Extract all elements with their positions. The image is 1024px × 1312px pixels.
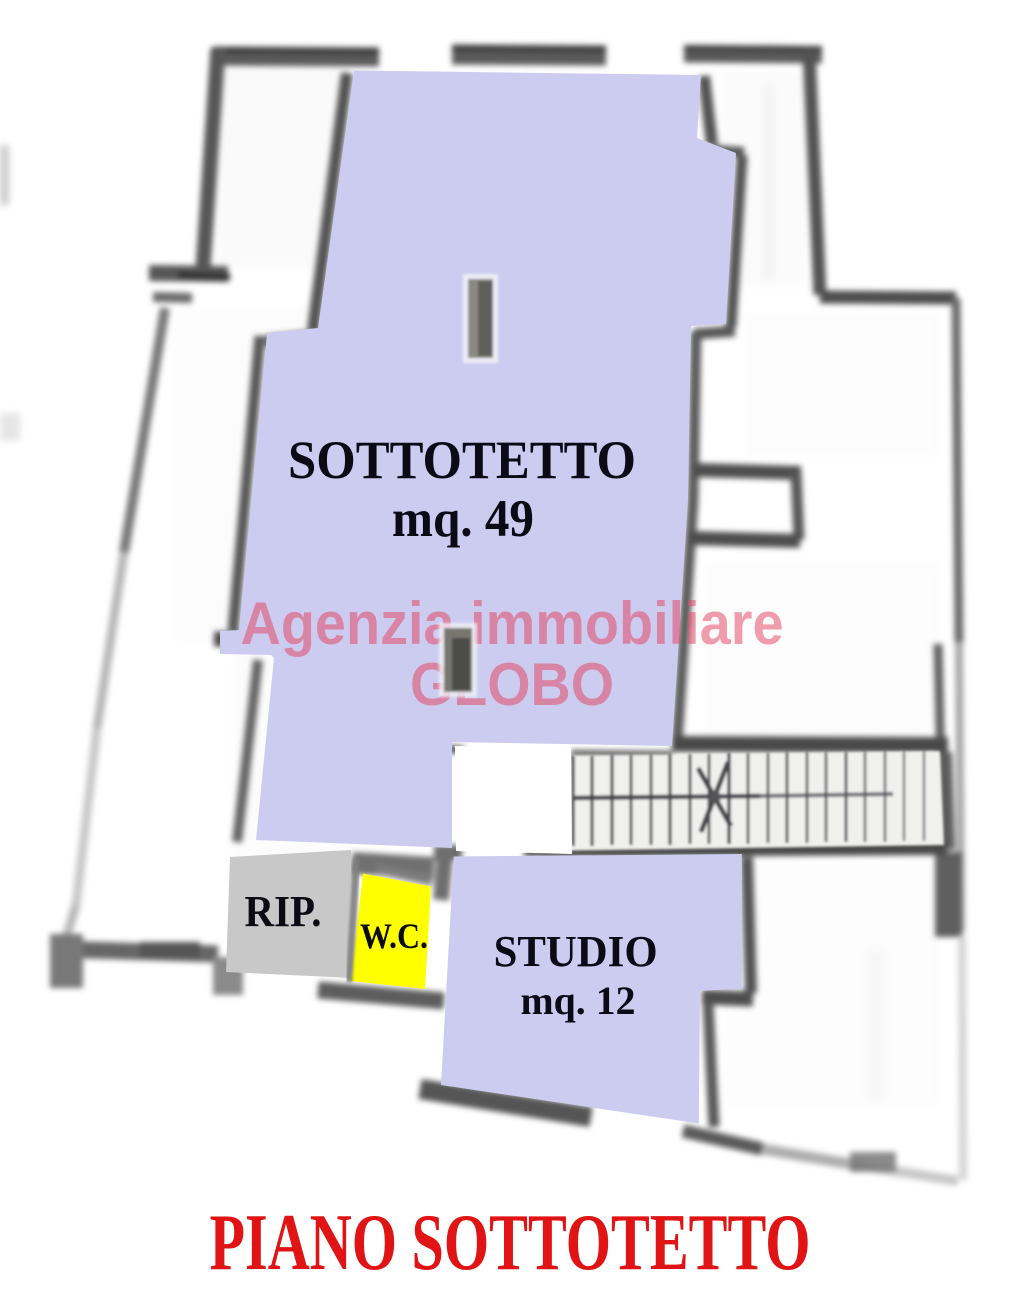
svg-text:W.C.: W.C. (360, 916, 428, 956)
svg-text:RIP.: RIP. (245, 887, 322, 936)
svg-text:STUDIO: STUDIO (494, 927, 658, 976)
svg-text:PIANO SOTTOTETTO: PIANO SOTTOTETTO (210, 1199, 811, 1287)
svg-text:mq. 12: mq. 12 (521, 978, 636, 1023)
svg-text:mq. 49: mq. 49 (392, 490, 534, 548)
svg-text:Agenzia immobiliare: Agenzia immobiliare (241, 590, 784, 657)
svg-text:SOTTOTETTO: SOTTOTETTO (288, 430, 636, 490)
